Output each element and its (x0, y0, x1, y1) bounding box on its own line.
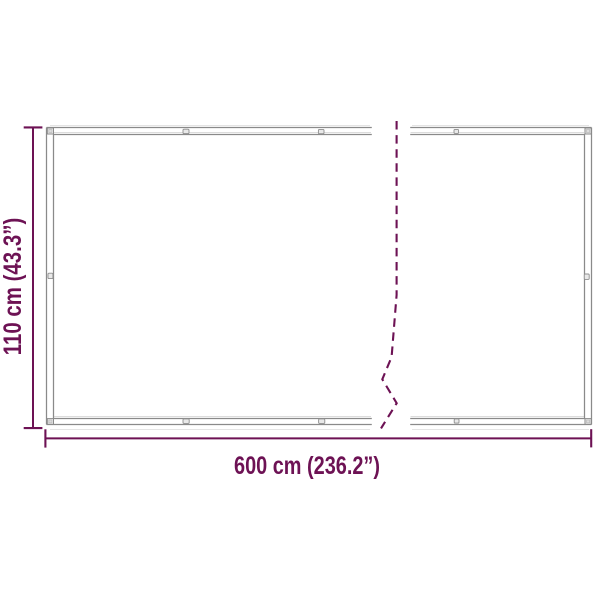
svg-text:600 cm (236.2”): 600 cm (236.2”) (234, 453, 380, 480)
svg-text:110 cm (43.3”): 110 cm (43.3”) (0, 218, 27, 356)
